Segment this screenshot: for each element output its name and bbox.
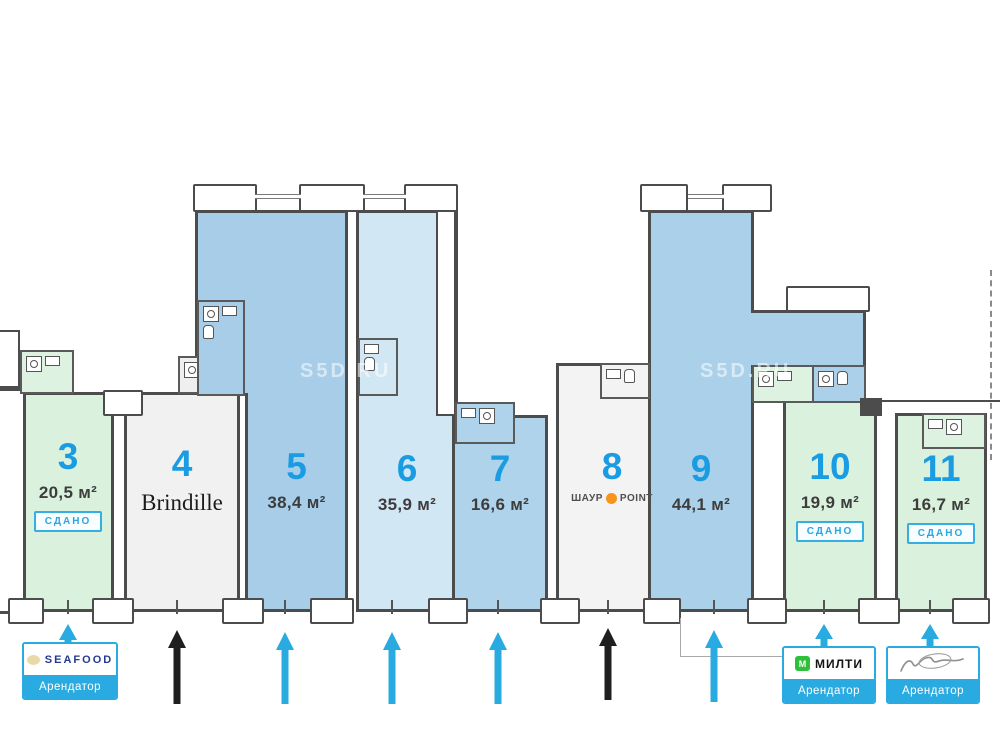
shaur-point-logo: ШАУР POINT bbox=[571, 493, 653, 504]
window bbox=[363, 194, 406, 199]
unit-number: 11 bbox=[921, 450, 960, 487]
shaur-logo-left: ШАУР bbox=[571, 493, 603, 504]
bathroom bbox=[812, 365, 866, 403]
door-mark bbox=[497, 600, 499, 614]
tenant-logo-text: МИЛТИ bbox=[815, 657, 863, 671]
tenant-logo: М МИЛТИ bbox=[784, 648, 874, 679]
window-pier bbox=[722, 184, 772, 212]
washer-icon bbox=[946, 419, 962, 435]
wall bbox=[878, 400, 1000, 402]
sink-icon bbox=[461, 408, 476, 418]
washer-icon bbox=[203, 306, 219, 322]
window-pier bbox=[404, 184, 458, 212]
balcony-wall bbox=[990, 270, 992, 460]
unit-number: 7 bbox=[490, 450, 511, 487]
tenant-badge-milti: М МИЛТИ Арендатор bbox=[782, 646, 876, 704]
unit-number: 4 bbox=[172, 445, 193, 482]
floor-plan: 3 20,5 м² СДАНО 4 Brindille 5 38,4 м² 6 … bbox=[0, 0, 1000, 750]
unit-9-room-extension bbox=[751, 310, 866, 365]
entrance-arrow-icon bbox=[598, 628, 618, 705]
unit-6-label: 6 35,9 м² bbox=[356, 450, 458, 515]
signature-icon bbox=[897, 651, 969, 677]
unit-area: 19,9 м² bbox=[801, 493, 859, 513]
toilet-icon bbox=[203, 325, 214, 339]
tenant-label: Арендатор bbox=[888, 679, 978, 702]
window bbox=[688, 194, 724, 199]
window-pier bbox=[786, 286, 870, 312]
unit-5-label: 5 38,4 м² bbox=[245, 448, 348, 513]
door-mark bbox=[284, 600, 286, 614]
sink-icon bbox=[364, 344, 379, 354]
unit-11-label: 11 16,7 м² СДАНО bbox=[895, 450, 987, 544]
shawarma-icon bbox=[606, 493, 617, 504]
unit-9-label: 9 44,1 м² bbox=[648, 450, 754, 515]
unit-area: 35,9 м² bbox=[378, 495, 436, 515]
leader-line bbox=[680, 618, 782, 657]
status-badge: СДАНО bbox=[907, 523, 975, 544]
tenant-name: Brindille bbox=[141, 490, 223, 516]
entrance-arrow-icon bbox=[382, 632, 402, 709]
milti-logo-icon: М bbox=[795, 656, 810, 671]
unit-area: 38,4 м² bbox=[267, 493, 325, 513]
sink-icon bbox=[606, 369, 621, 379]
bathroom bbox=[922, 413, 986, 449]
washer-icon bbox=[818, 371, 834, 387]
bathroom bbox=[455, 402, 515, 444]
tenant-logo: SEAFOOD bbox=[24, 644, 116, 675]
unit-7-label: 7 16,6 м² bbox=[452, 450, 548, 515]
window-pier bbox=[222, 598, 264, 624]
tenant-label: Арендатор bbox=[24, 675, 116, 698]
bathroom bbox=[197, 300, 245, 396]
tenant-logo-text: SEAFOOD bbox=[45, 654, 113, 666]
washer-icon bbox=[479, 408, 495, 424]
status-badge: СДАНО bbox=[34, 511, 102, 532]
unit-9-room-main bbox=[648, 210, 754, 612]
unit-area: 16,6 м² bbox=[471, 495, 529, 515]
window-pier bbox=[103, 390, 143, 416]
unit-area: 44,1 м² bbox=[672, 495, 730, 515]
window-pier bbox=[643, 598, 681, 624]
tenant-badge-seafood: SEAFOOD Арендатор bbox=[22, 642, 118, 700]
window-pier bbox=[952, 598, 990, 624]
unit-4-label: 4 Brindille bbox=[124, 445, 240, 516]
window-pier bbox=[310, 598, 354, 624]
tenant-badge-signature: Арендатор bbox=[886, 646, 980, 704]
unit-10-label: 10 19,9 м² СДАНО bbox=[783, 448, 877, 542]
unit-area: 16,7 м² bbox=[912, 495, 970, 515]
entrance-arrow-icon bbox=[167, 630, 187, 709]
unit-number: 5 bbox=[286, 448, 307, 485]
toilet-icon bbox=[837, 371, 848, 385]
window-pier bbox=[92, 598, 134, 624]
bathroom bbox=[20, 350, 74, 394]
unit-number: 6 bbox=[397, 450, 418, 487]
door-mark bbox=[176, 600, 178, 614]
status-badge: СДАНО bbox=[796, 521, 864, 542]
watermark: S5D.RU bbox=[300, 360, 391, 383]
toilet-icon bbox=[624, 369, 635, 383]
window-pier bbox=[540, 598, 580, 624]
unit-number: 8 bbox=[602, 448, 623, 485]
sink-icon bbox=[222, 306, 237, 316]
unit-number: 9 bbox=[691, 450, 712, 487]
entrance-arrow-icon bbox=[488, 632, 508, 709]
washer-icon bbox=[26, 356, 42, 372]
door-mark bbox=[823, 600, 825, 614]
window-pier bbox=[8, 598, 44, 624]
door-mark bbox=[713, 600, 715, 614]
unit-area: 20,5 м² bbox=[39, 483, 97, 503]
adjacent-wall-fragment bbox=[0, 330, 20, 388]
door-mark bbox=[391, 600, 393, 614]
door-mark bbox=[67, 600, 69, 614]
door-mark bbox=[607, 600, 609, 614]
entrance-arrow-icon bbox=[275, 632, 295, 709]
unit-number: 3 bbox=[58, 438, 79, 475]
tenant-logo bbox=[888, 648, 978, 679]
window-pier bbox=[428, 598, 468, 624]
light-shaft bbox=[436, 190, 456, 416]
watermark: S5D.RU bbox=[700, 360, 791, 383]
bathroom bbox=[600, 363, 650, 399]
entrance-arrow-icon bbox=[704, 630, 724, 707]
window-pier bbox=[858, 598, 900, 624]
door-mark bbox=[929, 600, 931, 614]
tenant-label: Арендатор bbox=[784, 679, 874, 702]
sink-icon bbox=[928, 419, 943, 429]
window-pier bbox=[193, 184, 257, 212]
sink-icon bbox=[45, 356, 60, 366]
window bbox=[255, 194, 301, 199]
crab-icon bbox=[27, 655, 40, 665]
window-pier bbox=[640, 184, 688, 212]
unit-3-label: 3 20,5 м² СДАНО bbox=[22, 438, 114, 532]
window-pier bbox=[299, 184, 365, 212]
unit-number: 10 bbox=[809, 448, 850, 485]
